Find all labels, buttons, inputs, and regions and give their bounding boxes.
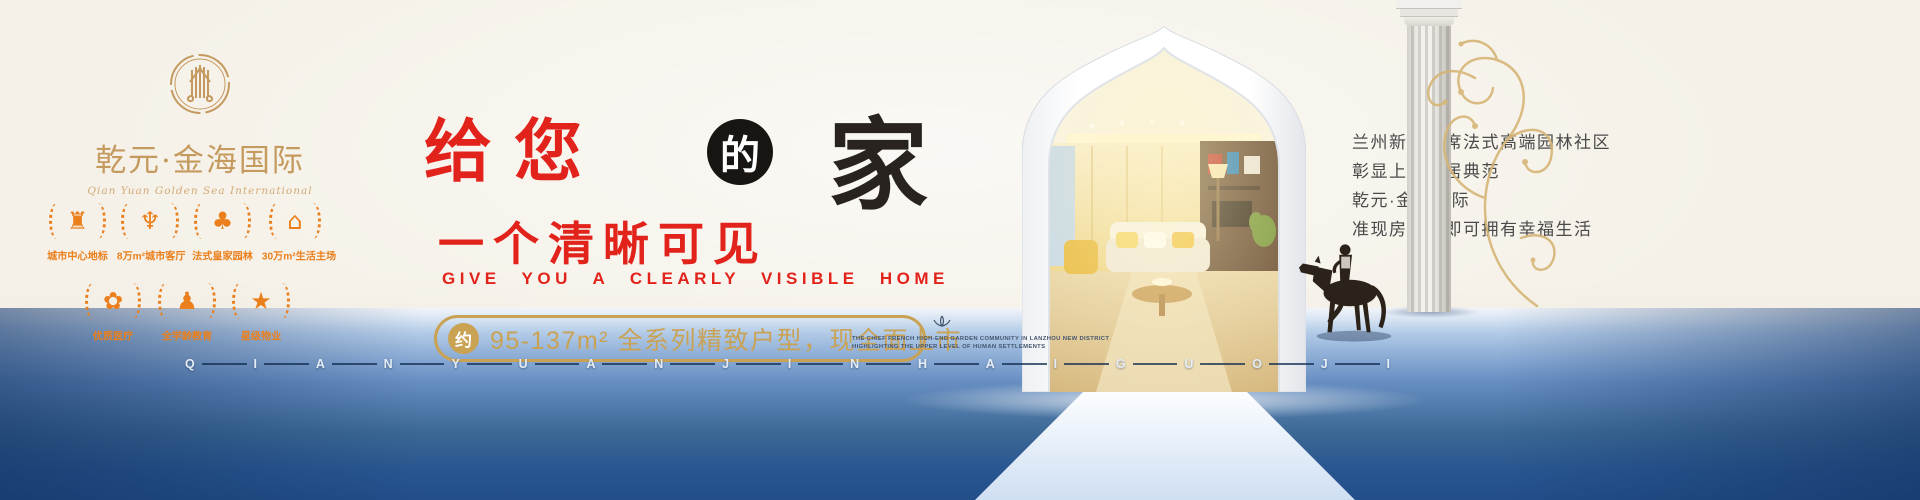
pinyin-letter: N (654, 357, 663, 371)
house-icon: ⌂ (287, 209, 302, 233)
equestrian-statue (1288, 238, 1418, 346)
city-landmark-icon: ♜ (67, 209, 89, 233)
pinyin-letter: J (1321, 357, 1328, 371)
pinyin-letter: H (918, 357, 927, 371)
laurel-wreath-icon: ♆ (114, 198, 186, 244)
pinyin-letter: Y (451, 357, 459, 371)
garden-tree-icon: ♣ (212, 209, 234, 233)
pinyin-letter: I (254, 357, 257, 371)
pinyin-letter: N (384, 357, 393, 371)
laurel-wreath-icon: ♣ (188, 198, 257, 244)
pinyin-letter: Q (185, 357, 195, 371)
laurel-wreath-icon: ♜ (43, 198, 112, 244)
badge-education: ♟ 全学龄教育 (151, 278, 223, 344)
pinyin-letter: A (986, 357, 995, 371)
pinyin-letter: U (1184, 357, 1193, 371)
laurel-wreath-icon: ★ (225, 278, 297, 324)
pinyin-letter: A (316, 357, 325, 371)
headline-home: 家 (828, 84, 928, 229)
pinyin-letter: A (586, 357, 595, 371)
fine-print-line-1: THE CHIEF FRENCH HIGH-END GARDEN COMMUNI… (852, 335, 1032, 342)
column-capital (1396, 0, 1462, 9)
badge-property: ★ 星级物业 (225, 278, 297, 344)
headline-english: GIVE YOU A CLEARLY VISIBLE HOME (442, 269, 949, 289)
five-star-icon: ★ (250, 289, 272, 313)
laurel-wreath-icon: ✿ (77, 278, 149, 324)
brand-logo: 乾元·金海国际 Qian Yuan Golden Sea Internation… (70, 52, 330, 197)
headline-de: 的 (720, 123, 760, 181)
pinyin-letter: N (850, 357, 859, 371)
headline-line2: 一个清晰可见 (438, 208, 768, 274)
badge-row-2: ✿ 优质医疗 ♟ 全学龄教育 ★ 星级物业 (42, 278, 332, 344)
badge-life-field: ⌂ 30万m²生活主场 (259, 198, 331, 264)
badge-row-1: ♜ 城市中心地标 ♆ 8万m²城市客厅 ♣ 法式皇家园林 ⌂ 30万m²生活主场 (42, 198, 332, 264)
badge-city-landmark: ♜ 城市中心地标 (43, 198, 112, 264)
fleur-ornament-icon (930, 315, 954, 328)
pinyin-letter: I (1054, 357, 1057, 371)
pinyin-letter: J (722, 357, 729, 371)
pinyin-letter: I (1387, 357, 1390, 371)
column-capital-band (1400, 9, 1458, 17)
feature-badges: ♜ 城市中心地标 ♆ 8万m²城市客厅 ♣ 法式皇家园林 ⌂ 30万m²生活主场… (42, 198, 332, 344)
headline-de-circle: 的 (707, 119, 773, 185)
laurel-wreath-icon: ♟ (151, 278, 223, 324)
wings-icon: ♆ (139, 209, 161, 233)
pinyin-letter: I (788, 357, 791, 371)
badge-royal-garden: ♣ 法式皇家园林 (188, 198, 257, 264)
badge-medical: ✿ 优质医疗 (77, 278, 149, 344)
pinyin-letter: G (1116, 357, 1126, 371)
brand-name-english: Qian Yuan Golden Sea International (70, 185, 330, 197)
real-estate-banner[interactable]: 乾元·金海国际 Qian Yuan Golden Sea Internation… (0, 0, 1920, 500)
approx-badge: 约 (448, 323, 479, 354)
laurel-wreath-icon: ⌂ (259, 198, 331, 244)
bottom-pinyin-ruler: Q I A N Y U A N J I N H A I G U O J I (185, 355, 1390, 373)
brand-name: 乾元·金海国际 (70, 135, 330, 180)
people-education-icon: ♟ (176, 289, 198, 313)
column-crest-icon (168, 52, 232, 116)
badge-city-livingroom: ♆ 8万m²城市客厅 (114, 198, 186, 264)
fine-print-line-2: HIGHLIGHTING THE UPPER LEVEL OF HUMAN SE… (852, 343, 1032, 350)
pinyin-letter: U (519, 357, 528, 371)
headline-give-you: 给您 (424, 96, 604, 195)
fine-print: THE CHIEF FRENCH HIGH-END GARDEN COMMUNI… (842, 315, 1042, 351)
flower-medical-icon: ✿ (103, 289, 123, 313)
pinyin-letter: O (1252, 357, 1262, 371)
